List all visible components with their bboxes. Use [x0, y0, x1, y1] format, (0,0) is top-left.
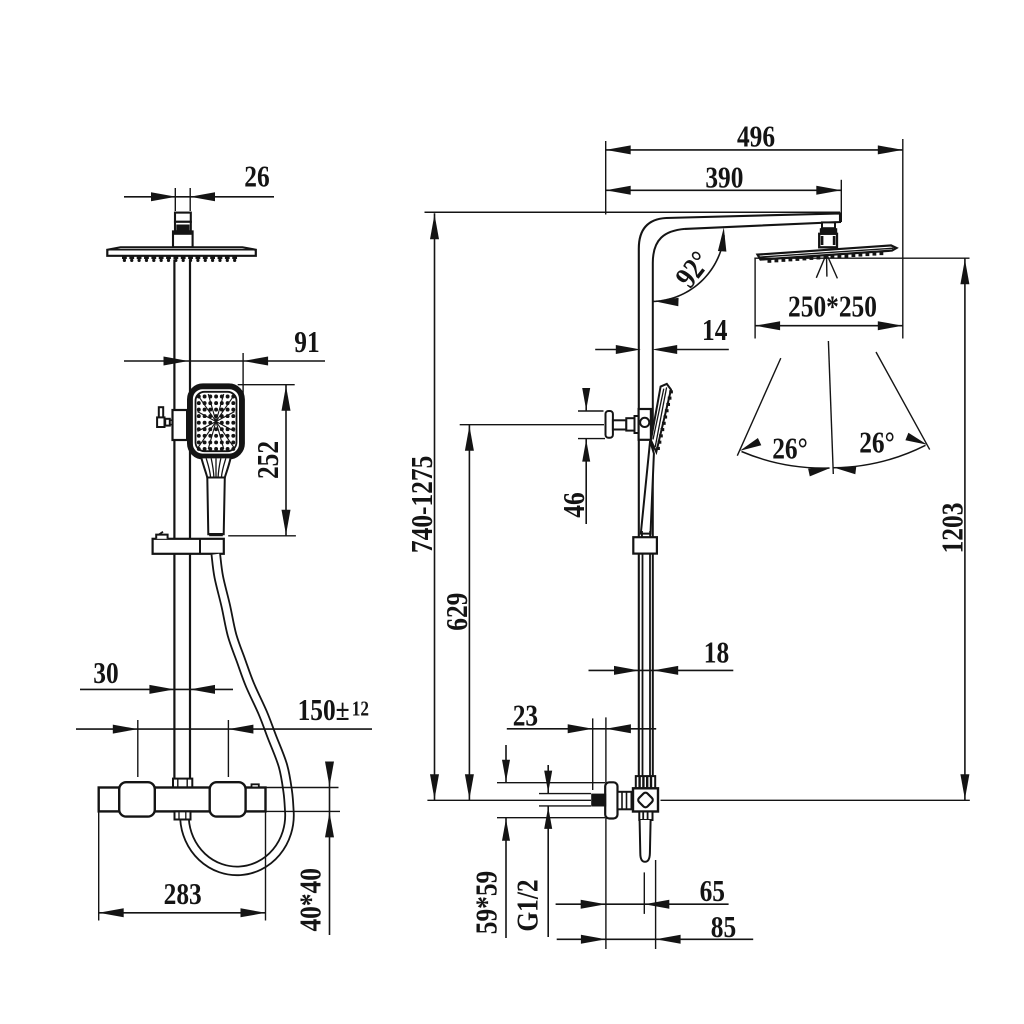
svg-text:26°: 26°	[859, 426, 895, 460]
svg-text:740-1275: 740-1275	[406, 456, 440, 553]
svg-text:252: 252	[252, 441, 286, 479]
svg-text:150±: 150±	[298, 694, 350, 728]
svg-text:30: 30	[93, 657, 118, 691]
svg-text:390: 390	[705, 161, 743, 195]
svg-text:283: 283	[164, 878, 202, 912]
svg-text:85: 85	[711, 911, 736, 945]
svg-text:26: 26	[244, 160, 269, 194]
svg-text:1203: 1203	[936, 503, 970, 554]
svg-text:59*59: 59*59	[470, 871, 504, 935]
svg-text:250*250: 250*250	[788, 290, 877, 324]
svg-text:26°: 26°	[772, 432, 808, 466]
svg-text:14: 14	[702, 314, 727, 348]
svg-text:496: 496	[737, 120, 775, 154]
svg-text:23: 23	[513, 699, 538, 733]
svg-text:65: 65	[700, 875, 725, 909]
svg-text:18: 18	[704, 636, 729, 670]
svg-text:40*40: 40*40	[294, 868, 328, 932]
svg-text:629: 629	[441, 593, 475, 631]
svg-text:91: 91	[294, 326, 319, 360]
svg-text:G1/2: G1/2	[511, 879, 545, 931]
svg-text:46: 46	[558, 492, 592, 517]
svg-text:12: 12	[352, 698, 369, 721]
